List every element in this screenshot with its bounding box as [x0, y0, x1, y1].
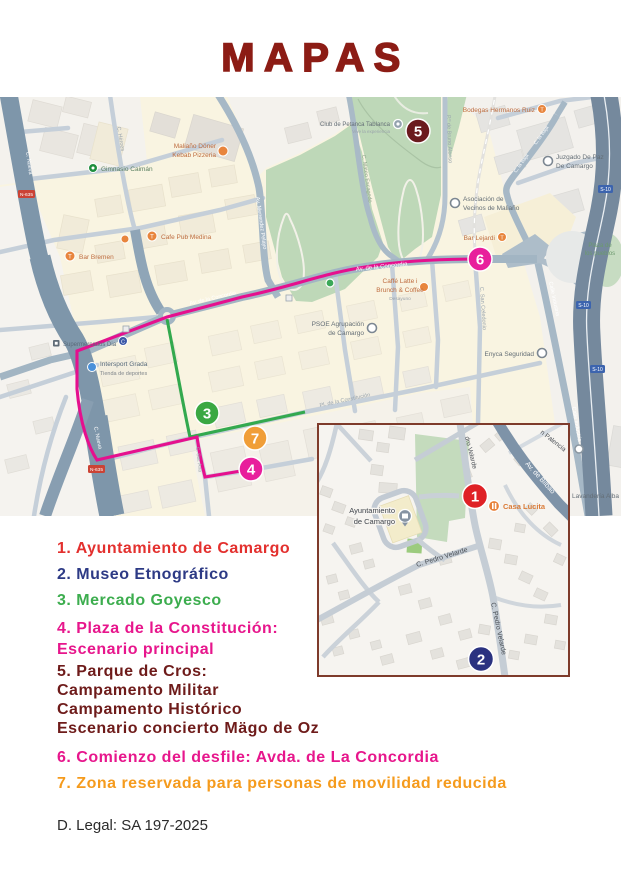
svg-text:Asociación de: Asociación de: [463, 196, 504, 203]
svg-text:Kebab Pizzeria: Kebab Pizzeria: [172, 152, 216, 159]
svg-text:Brunch & Coffee: Brunch & Coffee: [376, 287, 424, 294]
svg-text:N-635: N-635: [20, 192, 33, 198]
svg-text:Enyca Seguridad: Enyca Seguridad: [484, 351, 534, 358]
svg-text:de Camargo: de Camargo: [354, 517, 395, 526]
svg-text:Maliaño Döner: Maliaño Döner: [174, 143, 217, 150]
svg-text:Caffé Latte i: Caffé Latte i: [383, 278, 418, 285]
svg-text:De Camargo: De Camargo: [556, 163, 593, 170]
svg-text:6: 6: [476, 252, 484, 269]
svg-text:S-10: S-10: [600, 187, 611, 193]
svg-text:Desayuno: Desayuno: [389, 296, 411, 302]
svg-text:Bar Bremen: Bar Bremen: [79, 254, 114, 261]
svg-text:Bar Lejardi: Bar Lejardi: [464, 235, 495, 242]
svg-text:5: 5: [414, 124, 422, 141]
svg-text:S-10: S-10: [578, 303, 589, 309]
svg-text:Club de Petanca Tablanca: Club de Petanca Tablanca: [320, 122, 391, 128]
svg-text:S-10: S-10: [592, 367, 603, 373]
svg-text:Juzgado De Paz: Juzgado De Paz: [556, 154, 604, 161]
svg-text:4: 4: [247, 462, 256, 479]
svg-text:C: C: [121, 340, 125, 346]
svg-text:2: 2: [477, 652, 485, 669]
svg-text:Vecinos de Maliaño: Vecinos de Maliaño: [463, 205, 520, 212]
svg-text:Gimnasio Caimán: Gimnasio Caimán: [101, 166, 153, 173]
svg-text:los pueblos: los pueblos: [585, 251, 615, 257]
svg-text:1: 1: [471, 489, 479, 506]
svg-text:Plaza de: Plaza de: [588, 243, 612, 249]
svg-text:7: 7: [251, 431, 259, 448]
svg-text:Intersport Grada: Intersport Grada: [100, 361, 148, 368]
svg-text:3: 3: [203, 406, 211, 423]
svg-text:T: T: [150, 235, 154, 241]
svg-text:Bodegas Hermanos Ruiz: Bodegas Hermanos Ruiz: [463, 107, 535, 114]
svg-text:Casa Lucita: Casa Lucita: [503, 502, 546, 511]
svg-text:Supermercados Dia: Supermercados Dia: [63, 342, 117, 348]
svg-text:Vive la experiencia: Vive la experiencia: [352, 129, 390, 134]
svg-text:PSOE Agrupación: PSOE Agrupación: [312, 321, 365, 328]
svg-text:de Camargo: de Camargo: [328, 330, 364, 337]
svg-text:Cafe Pub Medina: Cafe Pub Medina: [161, 234, 212, 241]
svg-text:Tienda de deportes: Tienda de deportes: [100, 371, 147, 377]
svg-text:Ayuntamiento: Ayuntamiento: [349, 506, 395, 515]
svg-text:Lavandería Alba: Lavandería Alba: [572, 493, 619, 500]
svg-text:N-635: N-635: [90, 467, 103, 473]
svg-text:T: T: [68, 255, 72, 261]
